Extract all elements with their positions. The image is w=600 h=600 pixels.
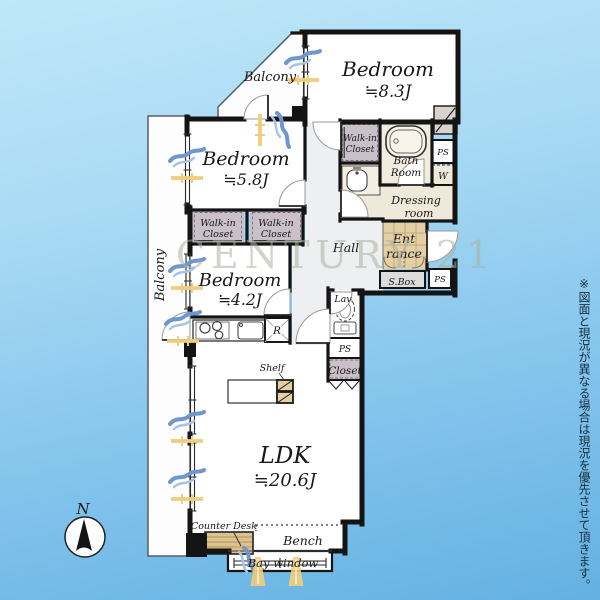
ps-top-label: PS [436, 148, 449, 158]
counter-desk-label: Counter Desk [191, 521, 257, 532]
compass-north-label: N [75, 500, 90, 518]
balcony-top-label: Balcony [243, 70, 297, 85]
wic-top-label-1: Walk-in [343, 134, 377, 144]
bathtub-icon [386, 126, 426, 157]
wic-top-label-2: Closet [346, 145, 375, 155]
sink-icon [238, 322, 263, 339]
dressing-label-2: room [405, 207, 434, 220]
disclaimer-text: ※図面と現況が異なる場合は現況を優先させて頂きます。 [576, 277, 593, 591]
hall-label: Hall [332, 240, 359, 255]
ldk-label: LDK [259, 443, 313, 469]
bedroom-58-size: ≒5.8J [223, 170, 270, 189]
bath-label-1: Bath [393, 155, 419, 167]
bench-label: Bench [282, 533, 323, 548]
bedroom-42-size: ≒4.2J [218, 291, 263, 309]
floor-plan-page: N Bedroom ≒8.3J Bedroom ≒5.8J Bedroom ≒4… [0, 0, 600, 600]
closet-label: Closet [328, 365, 362, 377]
compass-icon: N [65, 500, 105, 557]
wic-right-label-1: Walk-in [258, 218, 294, 229]
wic-left-label-2: Closet [203, 229, 234, 240]
wic-left-label-1: Walk-in [200, 218, 236, 229]
ps-middle-label: PS [338, 345, 351, 355]
balcony-left-label: Balcony [153, 248, 168, 302]
bay-window-label: Bay window [247, 556, 319, 570]
shoe-box-label: S.Box [388, 277, 416, 288]
bedroom-58-label: Bedroom [201, 148, 289, 170]
entrance-label-1: Ent [392, 231, 416, 246]
front-door [427, 231, 458, 262]
bedroom-42-label: Bedroom [198, 270, 282, 291]
bedroom-83-size: ≒8.3J [365, 82, 413, 101]
dressing-label-1: Dressing [390, 194, 441, 207]
bedroom-83-label: Bedroom [341, 57, 434, 81]
ldk-size: ≒20.6J [254, 470, 318, 491]
floor-plan-drawing: N Bedroom ≒8.3J Bedroom ≒5.8J Bedroom ≒4… [0, 0, 600, 600]
wic-right-label-2: Closet [261, 229, 292, 240]
refrigerator-label: R [272, 325, 281, 337]
washer-label: W [438, 171, 449, 182]
entrance-label-2: rance [386, 246, 422, 261]
shelf-label: Shelf [260, 363, 286, 374]
bath-label-2: Room [390, 167, 422, 179]
lavatory-label: Lav. [333, 294, 353, 305]
ps-entrance-label: PS [433, 275, 446, 285]
